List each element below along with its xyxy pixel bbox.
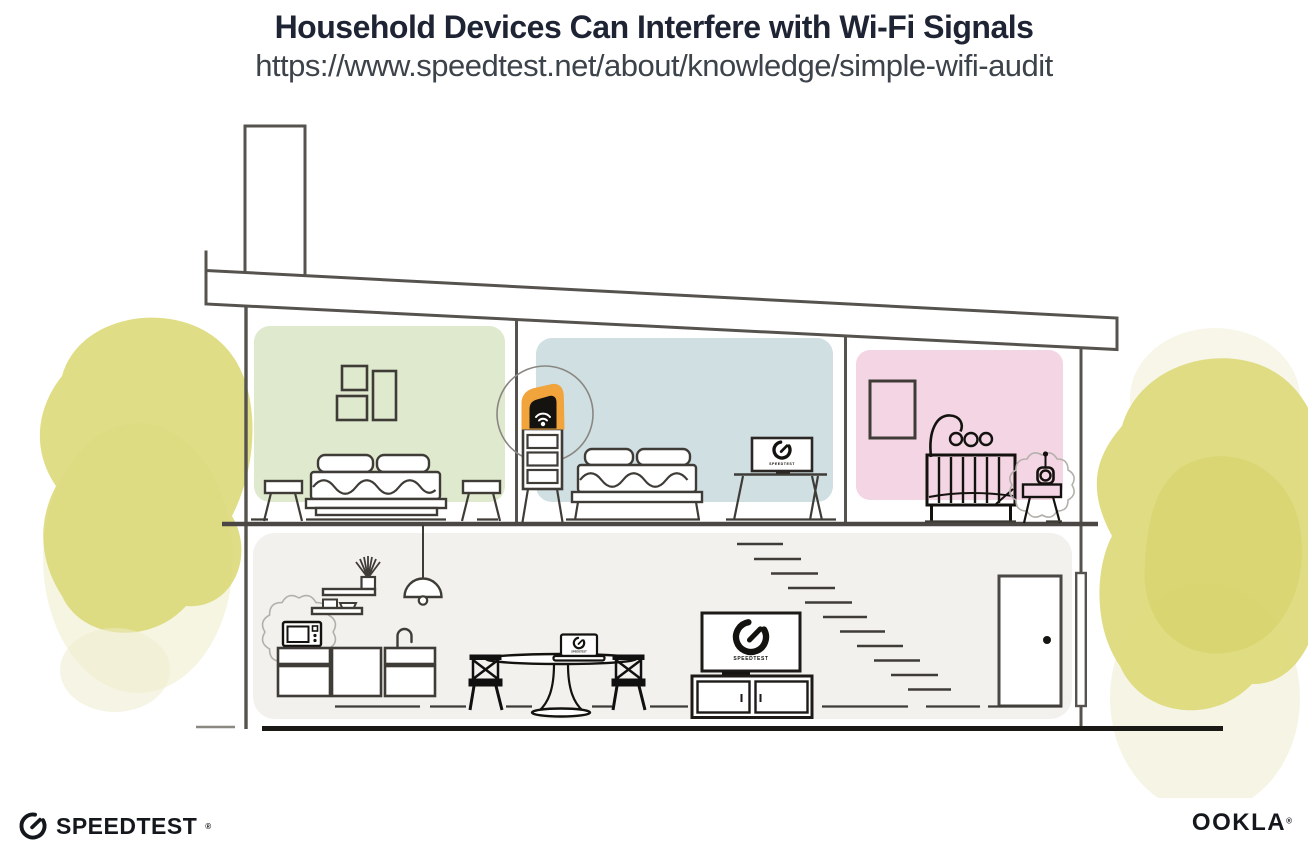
bedroom-monitor: SPEEDTEST bbox=[752, 438, 812, 473]
laptop: SPEEDTEST bbox=[554, 635, 605, 661]
infographic-page: Household Devices Can Interfere with Wi-… bbox=[0, 0, 1308, 861]
ookla-trademark: ® bbox=[1286, 817, 1292, 826]
laptop-screen-label: SPEEDTEST bbox=[571, 650, 587, 654]
media-console bbox=[692, 676, 812, 718]
table-base bbox=[532, 709, 590, 717]
living-room-tv: SPEEDTEST bbox=[702, 613, 800, 675]
kitchen-counters bbox=[278, 648, 435, 696]
upper-floor-lines bbox=[251, 520, 1062, 522]
bush-left bbox=[40, 318, 253, 712]
monitor-table bbox=[1023, 485, 1061, 524]
tv-stand bbox=[722, 672, 750, 676]
chimney bbox=[245, 126, 305, 282]
house-illustration: SPEEDTEST bbox=[0, 118, 1308, 798]
wifi-router bbox=[522, 384, 565, 430]
speedtest-trademark: ® bbox=[205, 822, 211, 831]
door-knob bbox=[1043, 636, 1051, 644]
nursery-pink-wall bbox=[856, 350, 1063, 500]
ookla-logo: OOKLA® bbox=[1192, 809, 1292, 837]
speedtest-gauge-icon bbox=[18, 811, 48, 841]
green-bedroom-bed bbox=[306, 455, 446, 515]
downspout bbox=[1076, 573, 1086, 706]
blue-bedroom-bed bbox=[572, 449, 702, 520]
speedtest-wordmark: SPEEDTEST bbox=[56, 813, 197, 840]
page-title: Household Devices Can Interfere with Wi-… bbox=[0, 8, 1308, 46]
bedroom-monitor-label: SPEEDTEST bbox=[769, 462, 795, 466]
dresser bbox=[523, 429, 563, 522]
door bbox=[999, 576, 1061, 706]
bush-left-body bbox=[40, 318, 253, 633]
source-url: https://www.speedtest.net/about/knowledg… bbox=[0, 48, 1308, 84]
ookla-wordmark: OOKLA bbox=[1192, 809, 1286, 836]
speedtest-logo: SPEEDTEST® bbox=[18, 811, 211, 841]
microwave bbox=[283, 622, 321, 646]
laptop-base bbox=[554, 656, 605, 661]
header: Household Devices Can Interfere with Wi-… bbox=[0, 8, 1308, 84]
bush-left-base bbox=[60, 628, 170, 712]
tv-screen-label: SPEEDTEST bbox=[733, 656, 768, 662]
